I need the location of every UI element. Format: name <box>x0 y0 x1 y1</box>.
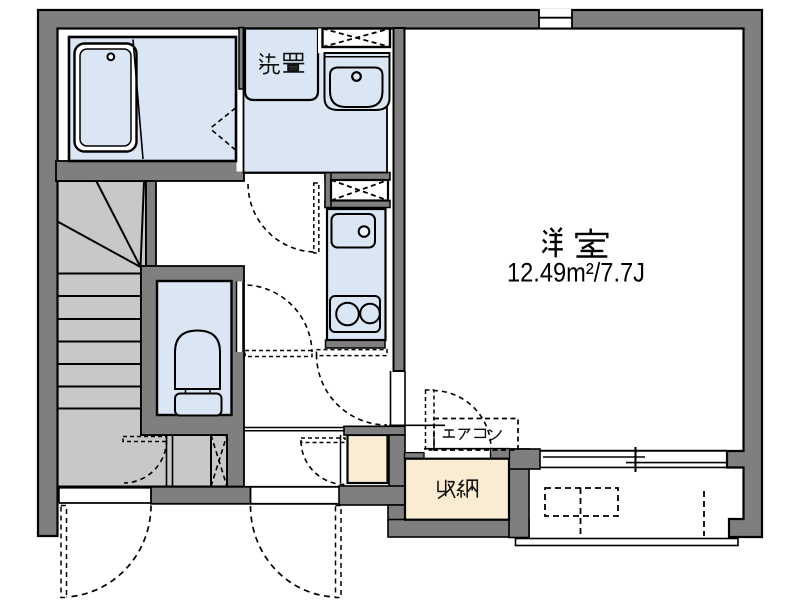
svg-text:12.49m²/7.7J: 12.49m²/7.7J <box>507 258 645 288</box>
